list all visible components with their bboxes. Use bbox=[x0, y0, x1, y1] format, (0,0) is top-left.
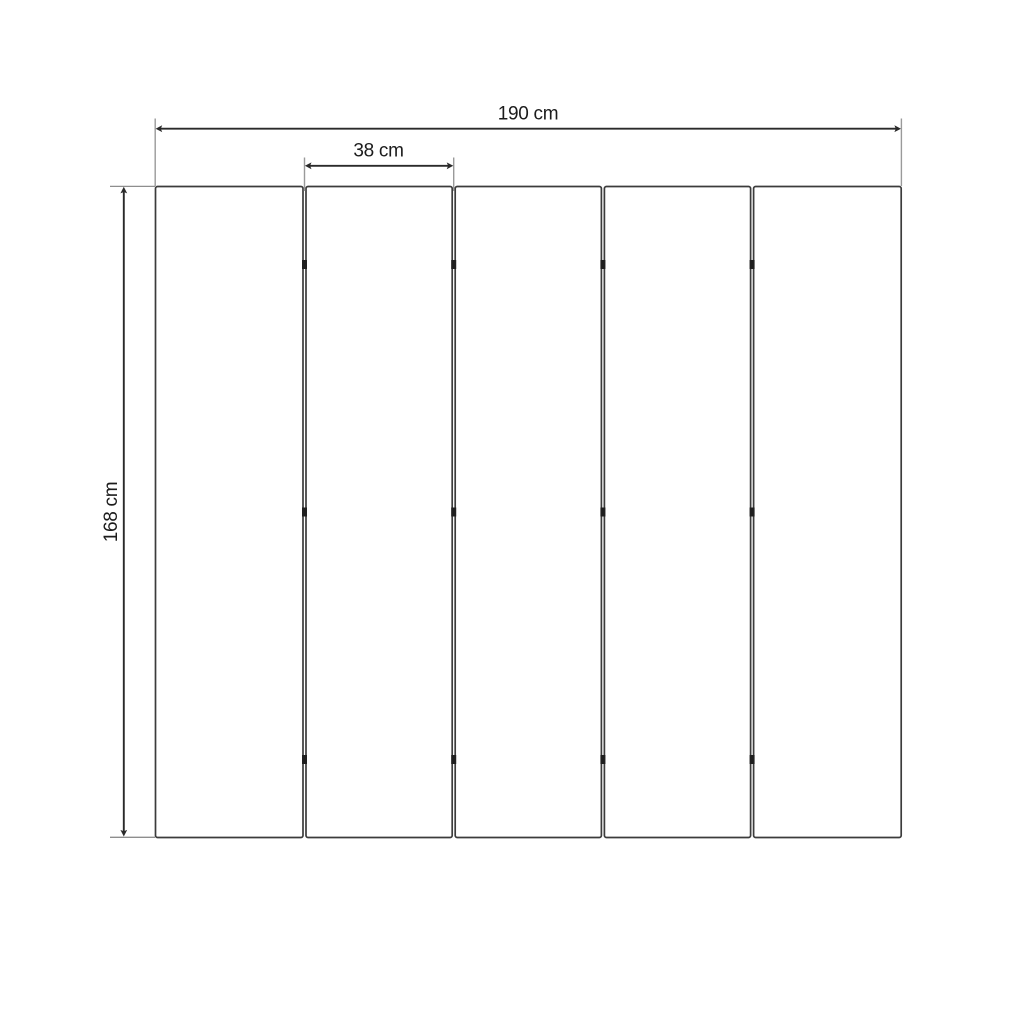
svg-text:168 cm: 168 cm bbox=[101, 482, 122, 543]
svg-text:38 cm: 38 cm bbox=[353, 141, 403, 162]
svg-text:190 cm: 190 cm bbox=[498, 104, 559, 125]
